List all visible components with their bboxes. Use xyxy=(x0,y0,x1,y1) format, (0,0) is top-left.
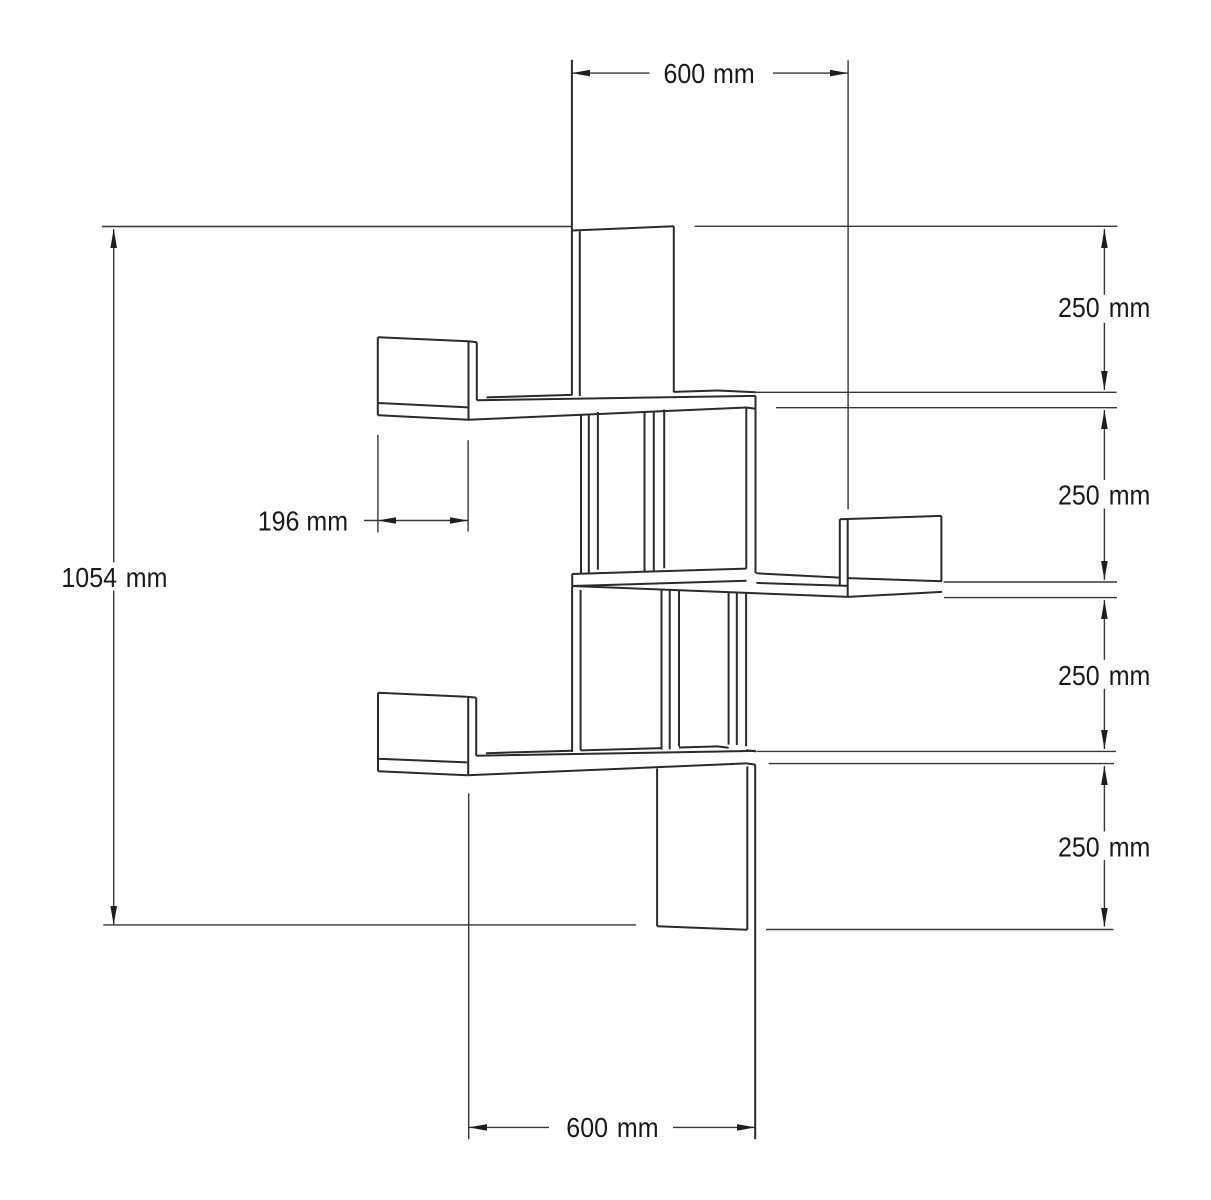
svg-text:196: 196 xyxy=(258,505,300,537)
svg-text:mm: mm xyxy=(1109,292,1151,324)
svg-text:mm: mm xyxy=(306,505,348,537)
svg-text:250: 250 xyxy=(1058,660,1100,692)
svg-text:mm: mm xyxy=(126,562,168,594)
svg-text:mm: mm xyxy=(1109,831,1151,863)
svg-text:600: 600 xyxy=(664,58,706,90)
svg-text:mm: mm xyxy=(1109,479,1151,511)
svg-text:mm: mm xyxy=(713,58,755,90)
svg-text:1054: 1054 xyxy=(61,562,117,594)
svg-text:250: 250 xyxy=(1058,479,1100,511)
svg-text:250: 250 xyxy=(1058,831,1100,863)
svg-text:250: 250 xyxy=(1058,292,1100,324)
svg-text:mm: mm xyxy=(1109,660,1151,692)
svg-text:600: 600 xyxy=(566,1112,608,1144)
svg-text:mm: mm xyxy=(617,1112,659,1144)
